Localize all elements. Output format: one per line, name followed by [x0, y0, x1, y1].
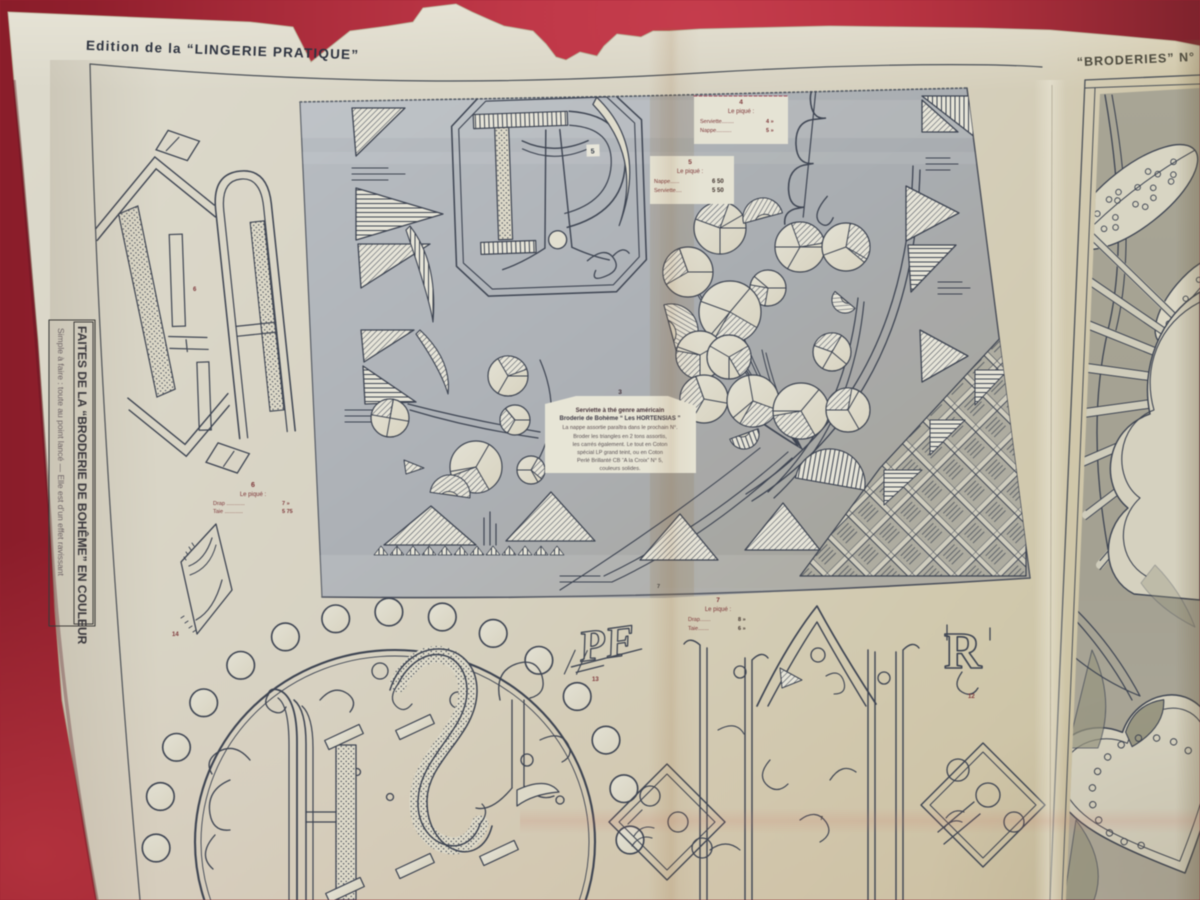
svg-text:Le piqué :: Le piqué :	[240, 492, 267, 498]
svg-text:Taie ............: Taie ............	[213, 509, 243, 515]
svg-text:3: 3	[618, 389, 622, 396]
svg-text:4: 4	[739, 99, 743, 106]
svg-text:6: 6	[251, 482, 255, 489]
svg-text:couleurs solides.: couleurs solides.	[600, 466, 641, 472]
svg-text:14: 14	[172, 632, 179, 638]
svg-text:Nappe..........: Nappe..........	[700, 128, 732, 134]
svg-text:5 75: 5 75	[282, 509, 293, 515]
svg-text:Le piqué :: Le piqué :	[728, 109, 755, 115]
svg-text:Serviette........: Serviette........	[700, 119, 734, 125]
svg-text:Drap ............: Drap ............	[213, 501, 245, 507]
svg-text:5 »: 5 »	[766, 128, 774, 134]
svg-text:7 »: 7 »	[282, 501, 290, 507]
svg-text:6 50: 6 50	[712, 179, 724, 185]
svg-text:5 50: 5 50	[712, 188, 724, 194]
svg-text:5: 5	[591, 148, 595, 155]
svg-text:4 »: 4 »	[766, 119, 774, 125]
svg-text:13: 13	[592, 677, 599, 683]
